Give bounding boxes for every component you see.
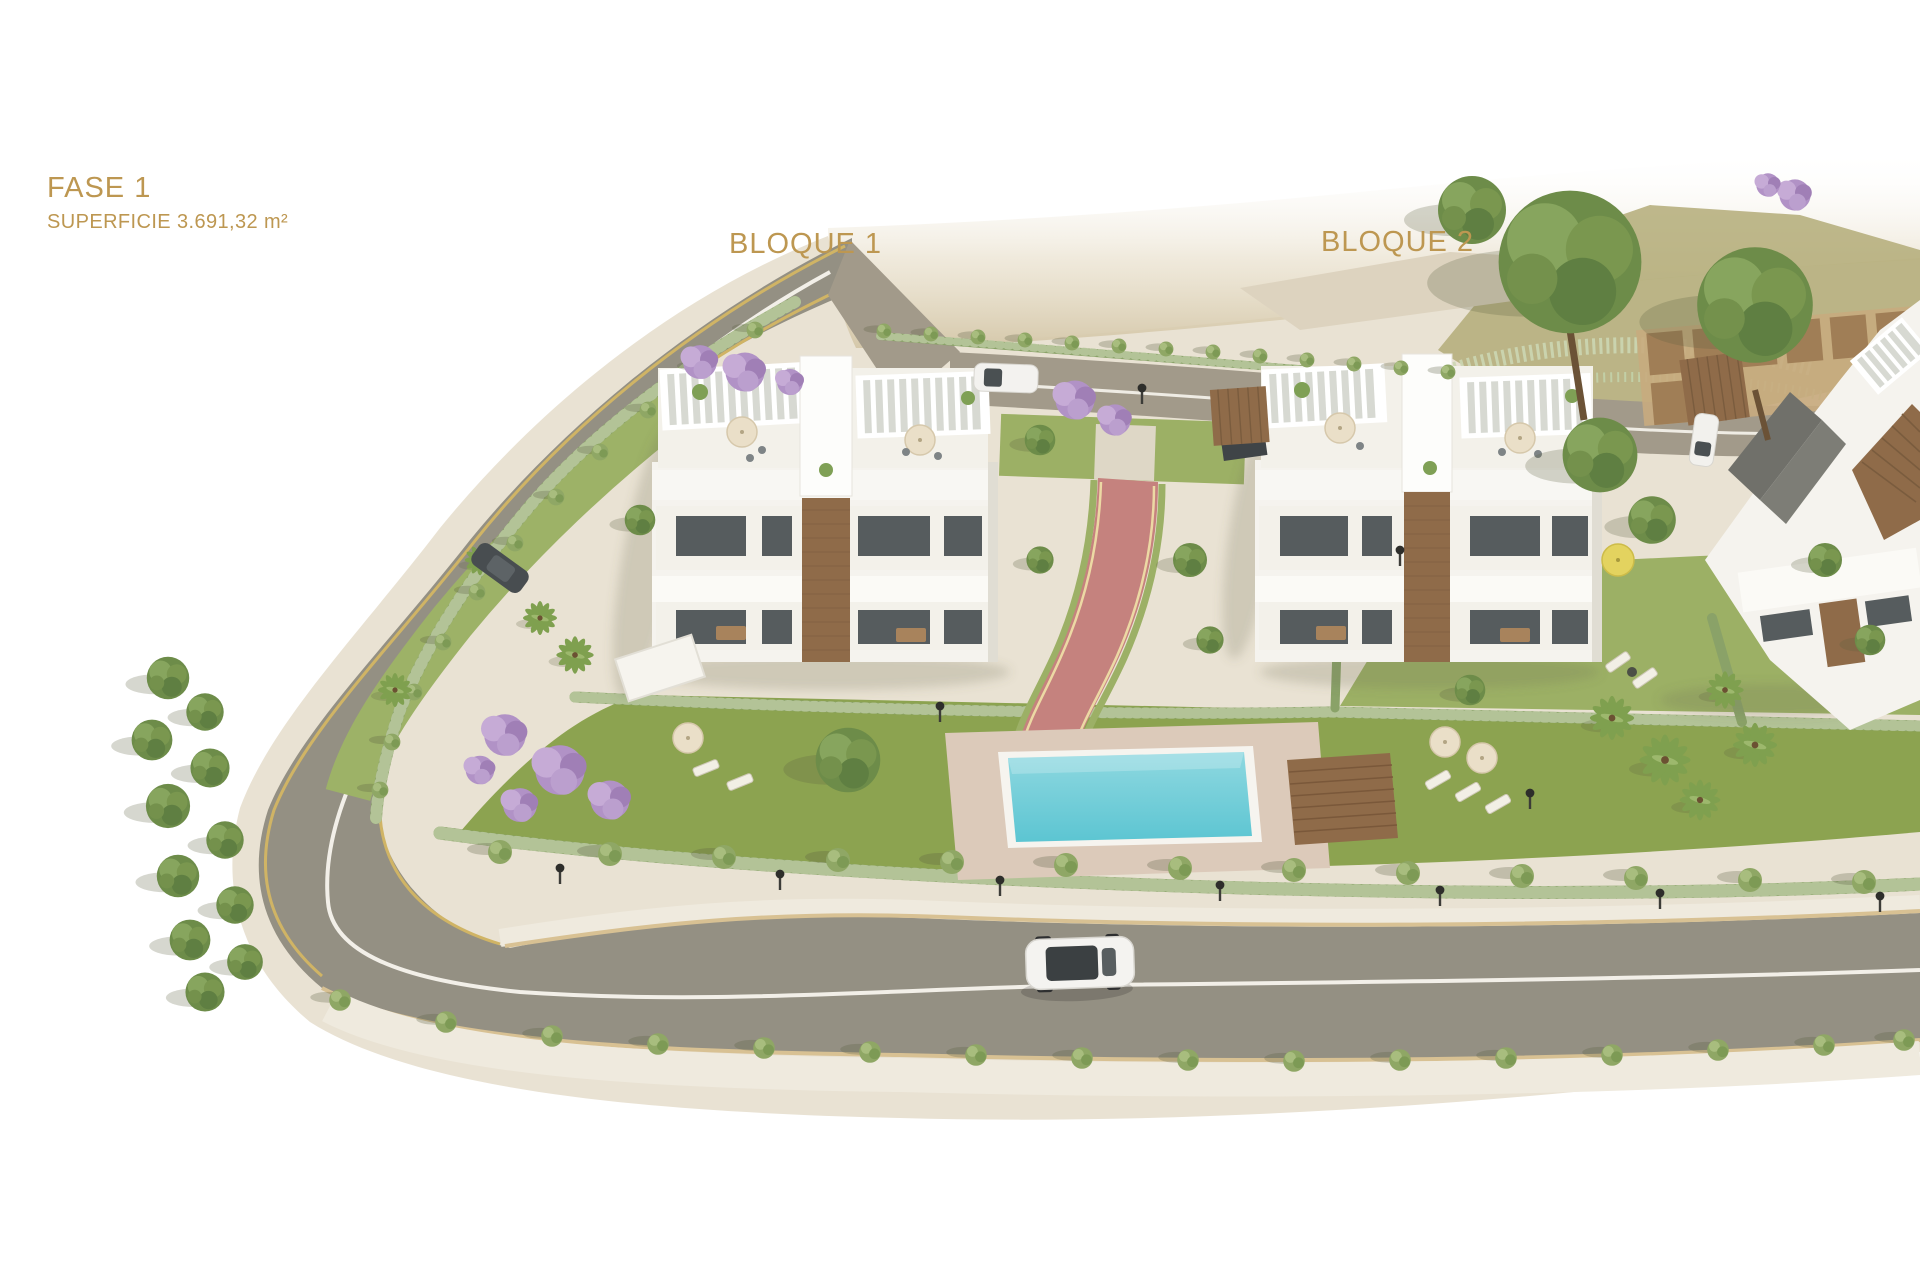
wood-accent-panel <box>802 498 850 662</box>
white-car-main-road <box>1019 933 1135 1003</box>
block1-label: BLOQUE 1 <box>729 228 882 261</box>
yellow-umbrella <box>1602 544 1634 576</box>
site-plan-illustration <box>0 0 1920 1280</box>
roof-pergola-left <box>1264 366 1385 426</box>
terrace-umbrella <box>727 417 757 447</box>
bloque-2-building <box>1255 354 1602 662</box>
render-canvas: FASE 1 SUPERFICIE 3.691,32 m² BLOQUE 1 B… <box>0 0 1920 1280</box>
wood-deck <box>1287 753 1398 845</box>
phase-label: FASE 1 <box>47 172 151 205</box>
white-car-top-road <box>974 363 1039 393</box>
surface-label: SUPERFICIE 3.691,32 m² <box>47 211 288 234</box>
bloque-1-building <box>652 356 998 662</box>
block2-label: BLOQUE 2 <box>1321 226 1474 259</box>
wood-accent-panel <box>1404 492 1450 662</box>
